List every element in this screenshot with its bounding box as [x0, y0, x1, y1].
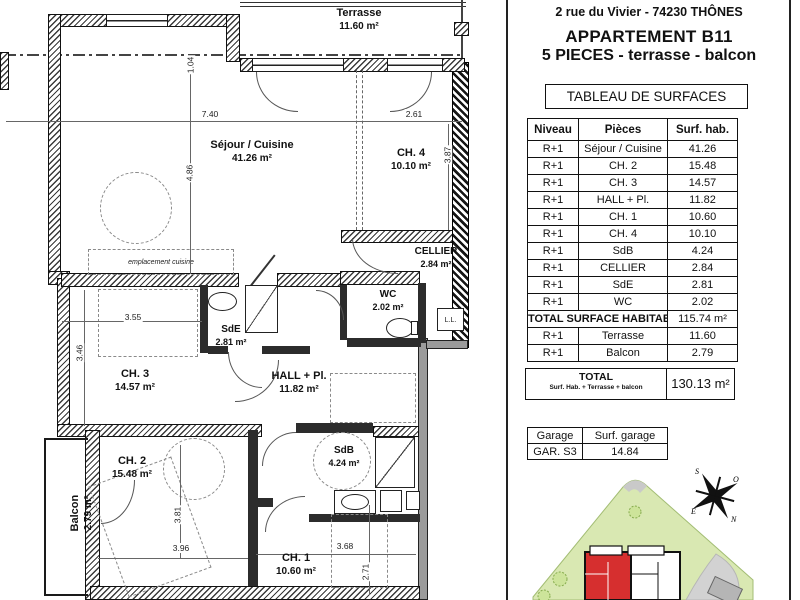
shower-sdb	[375, 437, 415, 488]
floorplan-sheet: L.L. emplacement cuisine 7.40 2.61 1.04 …	[0, 0, 800, 600]
room-label-sejour: Séjour / Cuisine 41.26 m²	[210, 139, 293, 165]
col-niveau: Niveau	[528, 119, 579, 141]
dim-label: 1.04	[185, 56, 195, 75]
wall	[452, 62, 469, 348]
dim-line	[98, 558, 248, 559]
dim-label: 3.81	[172, 506, 182, 525]
table-cell: HALL + Pl.	[579, 192, 668, 209]
total-box: TOTAL Surf. Hab. + Terrasse + balcon 130…	[525, 368, 735, 400]
wall	[277, 273, 341, 287]
table-cell: 2.81	[668, 277, 738, 294]
room-label-ch2: CH. 2 15.48 m²	[112, 455, 152, 481]
wall	[347, 338, 421, 347]
toilet-tank	[411, 321, 418, 335]
apartment-title: APPARTEMENT B11	[510, 27, 788, 47]
room-label-wc: WC 2.02 m²	[372, 289, 403, 313]
cabinet	[380, 490, 402, 512]
table-row: R+1CELLIER2.84	[528, 260, 738, 277]
dim-label: 3.55	[124, 312, 143, 322]
total-habitable-value: 115.74 m²	[668, 311, 738, 328]
dim-label: 3.96	[172, 543, 191, 553]
table-cell: 11.60	[668, 328, 738, 345]
wall	[0, 52, 9, 90]
room-label-sde: SdE 2.81 m²	[215, 324, 246, 348]
dim-line	[448, 124, 449, 230]
wall	[340, 271, 420, 285]
door-arc	[352, 238, 398, 274]
compass-east: E	[690, 507, 696, 516]
table-cell: R+1	[528, 141, 579, 158]
total-habitable-row: TOTAL SURFACE HABITABLE115.74 m²	[528, 311, 738, 328]
table-cell: 15.48	[668, 158, 738, 175]
room-label-cellier: CELLIER 2.84 m²	[415, 246, 458, 270]
garage-surface: 14.84	[583, 444, 668, 460]
table-cell: 2.79	[668, 345, 738, 362]
dim-label: 3.87	[442, 146, 452, 165]
door-arc	[262, 432, 296, 466]
column-symbol	[454, 22, 469, 36]
table-circle	[100, 172, 172, 244]
garage-header-row: Garage Surf. garage	[528, 428, 668, 444]
partition-dashed	[362, 70, 363, 230]
dim-line	[369, 505, 370, 595]
total-label-cell: TOTAL Surf. Hab. + Terrasse + balcon	[526, 369, 667, 399]
table-cell: R+1	[528, 226, 579, 243]
table-row: R+1CH. 215.48	[528, 158, 738, 175]
table-cell: R+1	[528, 328, 579, 345]
site-building-bay	[628, 546, 664, 555]
wall	[262, 346, 310, 354]
col-pieces: Pièces	[579, 119, 668, 141]
table-cell: CH. 1	[579, 209, 668, 226]
compass-south: S	[695, 467, 699, 476]
panel-divider-right	[789, 0, 791, 600]
dim-label: 2.71	[360, 563, 370, 582]
total-label: TOTAL	[526, 372, 666, 383]
wall	[248, 430, 258, 500]
table-row: R+1SdE2.81	[528, 277, 738, 294]
table-cell: Balcon	[579, 345, 668, 362]
door-arc	[390, 72, 432, 112]
compass-north: N	[730, 515, 737, 524]
table-row: R+1WC2.02	[528, 294, 738, 311]
sink-sdb	[341, 494, 369, 510]
table-cell: CH. 2	[579, 158, 668, 175]
kitchen-placement-note: emplacement cuisine	[88, 249, 234, 275]
wall	[248, 498, 258, 598]
dim-label: 2.61	[405, 109, 424, 119]
room-label-ch3: CH. 3 14.57 m²	[115, 368, 155, 394]
table-cell: R+1	[528, 243, 579, 260]
surface-table: Niveau Pièces Surf. hab. R+1Séjour / Cui…	[527, 118, 738, 362]
garage-col: Garage	[528, 428, 583, 444]
table-cell: CH. 4	[579, 226, 668, 243]
wall	[57, 278, 70, 430]
table-cell: R+1	[528, 277, 579, 294]
panel-divider-left	[506, 0, 508, 600]
compass-west: O	[733, 475, 739, 484]
dim-label: 4.86	[184, 164, 194, 183]
site-building-other	[631, 552, 680, 600]
table-row: R+1Balcon2.79	[528, 345, 738, 362]
col-surface: Surf. hab.	[668, 119, 738, 141]
table-cell: R+1	[528, 158, 579, 175]
room-label-hall: HALL + Pl. 11.82 m²	[271, 370, 326, 396]
table-cell: R+1	[528, 260, 579, 277]
partition-dashed	[356, 70, 357, 230]
table-row: R+1CH. 410.10	[528, 226, 738, 243]
room-label-sdb: SdB 4.24 m²	[328, 445, 359, 469]
table-cell: CH. 3	[579, 175, 668, 192]
table-cell: 11.82	[668, 192, 738, 209]
surface-table-body: R+1Séjour / Cuisine41.26R+1CH. 215.48R+1…	[528, 141, 738, 362]
room-label-balcon: Balcon 2.79 m²	[69, 495, 95, 532]
wall	[426, 340, 468, 349]
total-value: 130.13 m²	[667, 369, 734, 399]
table-cell: SdB	[579, 243, 668, 260]
table-row: R+1HALL + Pl.11.82	[528, 192, 738, 209]
dim-label: 3.68	[336, 541, 355, 551]
table-cell: 2.84	[668, 260, 738, 277]
table-cell: 10.10	[668, 226, 738, 243]
shower-sde	[245, 285, 278, 333]
window	[106, 14, 168, 27]
toilet-wc	[386, 318, 414, 338]
total-habitable-label: TOTAL SURFACE HABITABLE	[528, 311, 668, 328]
table-cell: 41.26	[668, 141, 738, 158]
compass-rose: S O E N	[688, 464, 744, 526]
site-building-bay	[590, 546, 622, 555]
wall	[296, 423, 373, 433]
table-row: R+1CH. 314.57	[528, 175, 738, 192]
table-row: R+1CH. 110.60	[528, 209, 738, 226]
washer-box: L.L.	[437, 308, 464, 331]
table-cell: R+1	[528, 175, 579, 192]
door-leaf	[248, 254, 275, 288]
floorplan-drawing: L.L. emplacement cuisine 7.40 2.61 1.04 …	[0, 0, 505, 600]
table-cell: CELLIER	[579, 260, 668, 277]
table-row: R+1Terrasse11.60	[528, 328, 738, 345]
table-cell: 10.60	[668, 209, 738, 226]
total-sublabel: Surf. Hab. + Terrasse + balcon	[526, 383, 666, 393]
table-cell: WC	[579, 294, 668, 311]
sliding-window	[252, 58, 344, 72]
surface-table-title: TABLEAU DE SURFACES	[545, 84, 748, 109]
room-label-ch1: CH. 1 10.60 m²	[276, 552, 316, 578]
address: 2 rue du Vivier - 74230 THÔNES	[510, 5, 788, 19]
table-row: R+1SdB4.24	[528, 243, 738, 260]
table-cell: SdE	[579, 277, 668, 294]
wall	[226, 14, 240, 62]
sliding-window	[387, 58, 443, 72]
dim-label: 7.40	[201, 109, 220, 119]
garage-id: GAR. S3	[528, 444, 583, 460]
closet-hall	[330, 373, 416, 423]
dim-line	[6, 121, 462, 122]
wall	[418, 283, 426, 343]
table-cell: R+1	[528, 192, 579, 209]
table-header-row: Niveau Pièces Surf. hab.	[528, 119, 738, 141]
cabinet	[406, 491, 420, 510]
dim-label: 3.46	[74, 344, 84, 363]
wall	[373, 426, 419, 437]
table-cell: R+1	[528, 209, 579, 226]
room-label-ch4: CH. 4 10.10 m²	[391, 147, 431, 173]
garage-table: Garage Surf. garage GAR. S3 14.84	[527, 427, 668, 460]
wall	[418, 338, 428, 600]
garage-surf-col: Surf. garage	[583, 428, 668, 444]
wall	[200, 285, 208, 353]
apartment-subtitle: 5 PIECES - terrasse - balcon	[510, 47, 788, 65]
wall	[48, 14, 61, 278]
table-cell: 4.24	[668, 243, 738, 260]
table-cell: R+1	[528, 294, 579, 311]
table-cell: 14.57	[668, 175, 738, 192]
sink-sde	[208, 292, 237, 311]
table-row: R+1Séjour / Cuisine41.26	[528, 141, 738, 158]
room-label-terrasse: Terrasse 11.60 m²	[336, 7, 381, 33]
table-cell: R+1	[528, 345, 579, 362]
table-cell: Séjour / Cuisine	[579, 141, 668, 158]
garage-row: GAR. S3 14.84	[528, 444, 668, 460]
door-arc	[256, 72, 298, 112]
bed-ch3	[98, 289, 198, 357]
table-cell: Terrasse	[579, 328, 668, 345]
dim-line	[180, 445, 181, 558]
table-cell: 2.02	[668, 294, 738, 311]
